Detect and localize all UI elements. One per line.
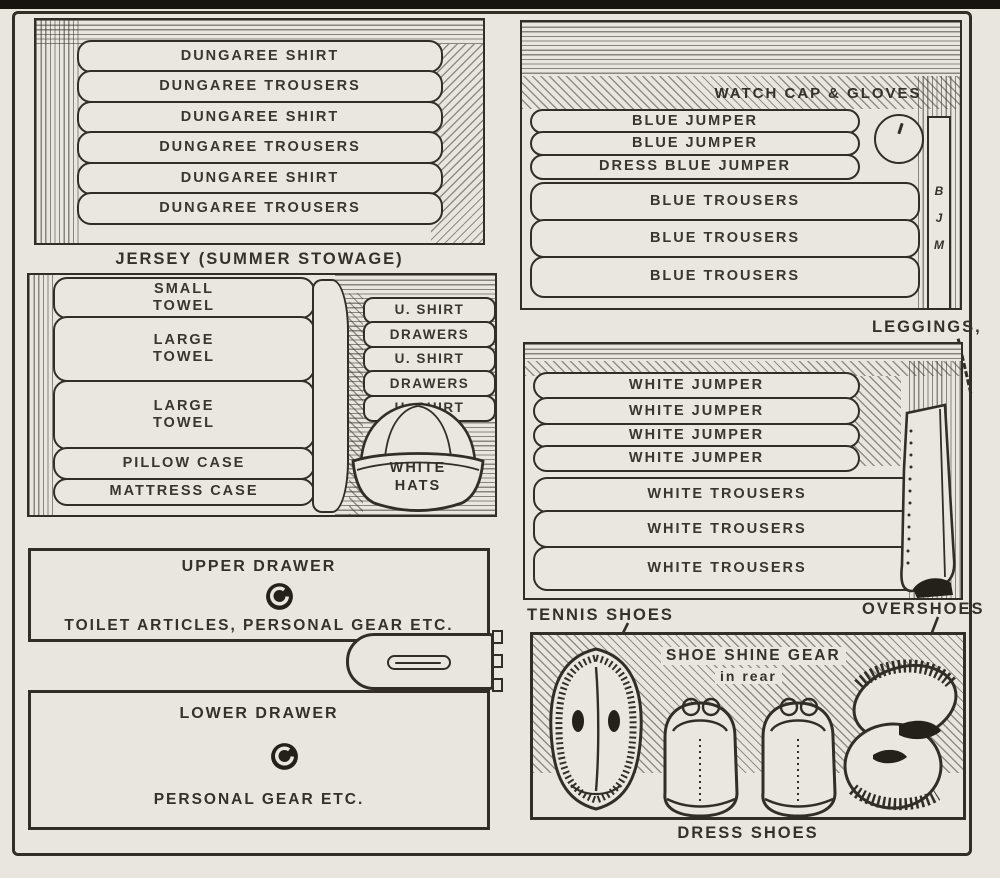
stowed-item: MATTRESS CASE bbox=[53, 478, 315, 506]
whites-ceiling-lines bbox=[525, 344, 961, 361]
roll-letter: B bbox=[935, 184, 944, 198]
upper-drawer-title: UPPER DRAWER bbox=[31, 558, 487, 576]
keyhole-icon bbox=[264, 581, 295, 612]
overshoes-drawing bbox=[833, 651, 965, 816]
stowed-item: DRAWERS bbox=[363, 321, 496, 348]
latch-slot bbox=[387, 655, 451, 670]
leggings-label: LEGGINGS, bbox=[872, 318, 982, 337]
blues-stack-trousers: BLUE TROUSERS BLUE TROUSERS BLUE TROUSER… bbox=[530, 184, 920, 298]
stowed-item: WHITE JUMPER bbox=[533, 423, 860, 448]
whites-shelf-panel: WHITE JUMPER WHITE JUMPER WHITE JUMPER W… bbox=[523, 342, 963, 600]
latch-tab bbox=[492, 630, 503, 644]
linens-left-stack: SMALL TOWEL LARGE TOWEL LARGE TOWEL PILL… bbox=[53, 279, 315, 506]
blues-shelf-panel: WATCH CAP & GLOVES B J M BLUE JUMPER BLU… bbox=[520, 20, 962, 310]
lower-drawer-title: LOWER DRAWER bbox=[31, 705, 487, 723]
stowed-item: WHITE TROUSERS bbox=[533, 510, 921, 548]
stowed-item: BLUE JUMPER bbox=[530, 109, 860, 134]
roll-letter: M bbox=[934, 238, 944, 252]
stowed-item: DUNGAREE TROUSERS bbox=[77, 192, 443, 225]
locker-stowage-diagram-page: DUNGAREE SHIRT DUNGAREE TROUSERS DUNGARE… bbox=[0, 0, 1000, 878]
shelf-left-wall-hatch bbox=[36, 20, 79, 243]
shoes-bin-panel: SHOE SHINE GEAR in rear bbox=[530, 632, 966, 820]
stowed-item: DUNGAREE SHIRT bbox=[77, 40, 443, 73]
stowed-item: WHITE JUMPER bbox=[533, 445, 860, 472]
white-hat-drawing: WHITE HATS bbox=[343, 391, 493, 513]
dungarees-shelf-panel: DUNGAREE SHIRT DUNGAREE TROUSERS DUNGARE… bbox=[34, 18, 485, 245]
stowed-item: U. SHIRT bbox=[363, 297, 496, 324]
rolled-item-bjm: B J M bbox=[927, 116, 951, 310]
stowed-item: SMALL TOWEL bbox=[53, 277, 315, 319]
linens-shelf-panel: SMALL TOWEL LARGE TOWEL LARGE TOWEL PILL… bbox=[27, 273, 497, 517]
shoe-shine-gear-label: SHOE SHINE GEAR bbox=[661, 647, 846, 665]
stowed-item: BLUE TROUSERS bbox=[530, 182, 920, 222]
stowed-item: DUNGAREE TROUSERS bbox=[77, 131, 443, 164]
white-hat-label: WHITE HATS bbox=[343, 459, 493, 495]
stowed-item: DUNGAREE SHIRT bbox=[77, 162, 443, 195]
dungarees-caption: JERSEY (SUMMER STOWAGE) bbox=[34, 250, 485, 269]
stowed-item: WHITE TROUSERS bbox=[533, 477, 921, 513]
stowed-item: WHITE JUMPER bbox=[533, 397, 860, 425]
shoe-shine-gear-sublabel: in rear bbox=[715, 668, 782, 684]
drawer-latch bbox=[346, 633, 494, 690]
latch-tab bbox=[492, 654, 503, 668]
keyhole-icon bbox=[269, 741, 300, 772]
stowed-item: LARGE TOWEL bbox=[53, 380, 315, 450]
stowed-item: DUNGAREE TROUSERS bbox=[77, 70, 443, 103]
stowed-item: WHITE JUMPER bbox=[533, 372, 860, 400]
stowed-item: WHITE TROUSERS bbox=[533, 546, 921, 591]
blues-ceiling-lines bbox=[522, 22, 960, 76]
scan-top-edge bbox=[0, 0, 1000, 9]
upper-drawer: UPPER DRAWER TOILET ARTICLES, PERSONAL G… bbox=[28, 548, 490, 642]
stowed-item: DRESS BLUE JUMPER bbox=[530, 154, 860, 180]
linens-left-wall-hatch bbox=[29, 275, 55, 515]
stowed-item: PILLOW CASE bbox=[53, 447, 315, 480]
dress-shoes-caption: DRESS SHOES bbox=[530, 824, 966, 843]
stowed-item: LARGE TOWEL bbox=[53, 316, 315, 382]
lower-drawer: LOWER DRAWER PERSONAL GEAR ETC. bbox=[28, 690, 490, 830]
whites-stack-jumpers: WHITE JUMPER WHITE JUMPER WHITE JUMPER W… bbox=[533, 374, 860, 472]
dress-shoes-drawing bbox=[655, 687, 845, 819]
whites-stack-trousers: WHITE TROUSERS WHITE TROUSERS WHITE TROU… bbox=[533, 479, 921, 591]
lower-drawer-contents: PERSONAL GEAR ETC. bbox=[31, 791, 487, 809]
blues-stack-jumpers: BLUE JUMPER BLUE JUMPER DRESS BLUE JUMPE… bbox=[530, 111, 860, 180]
tennis-shoes-label: TENNIS SHOES bbox=[527, 606, 677, 625]
dungaree-stack: DUNGAREE SHIRT DUNGAREE TROUSERS DUNGARE… bbox=[77, 42, 443, 225]
stowed-item: BLUE TROUSERS bbox=[530, 219, 920, 258]
tennis-shoe-drawing bbox=[539, 643, 654, 818]
stowed-item: BLUE JUMPER bbox=[530, 131, 860, 156]
roll-letter: J bbox=[936, 211, 943, 225]
stowed-item: DUNGAREE SHIRT bbox=[77, 101, 443, 134]
stowed-item: U. SHIRT bbox=[363, 346, 496, 373]
leggings-drawing bbox=[893, 399, 963, 599]
rolled-watch-cap bbox=[874, 114, 924, 164]
latch-tab bbox=[492, 678, 503, 692]
watch-cap-gloves-label: WATCH CAP & GLOVES bbox=[672, 85, 962, 102]
stowed-item: BLUE TROUSERS bbox=[530, 256, 920, 298]
